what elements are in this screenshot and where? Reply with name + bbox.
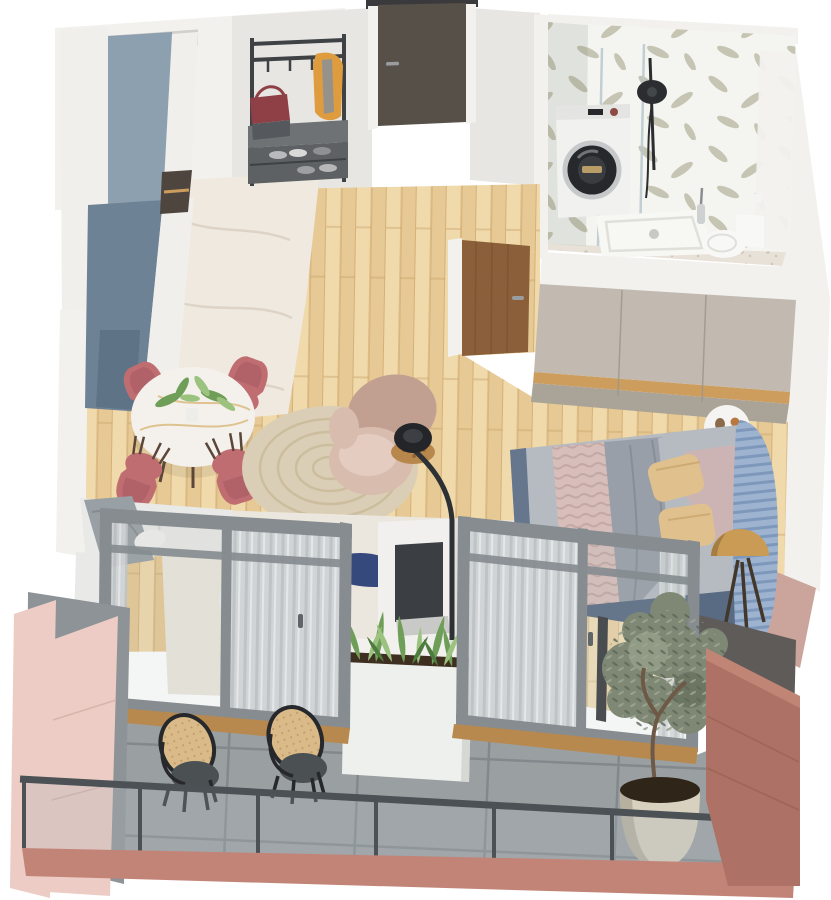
left-window-unit: [94, 508, 352, 744]
washing-machine: [556, 104, 630, 218]
wardrobe: [531, 252, 800, 424]
hanging-jacket: [313, 53, 343, 121]
bedroom-door-jamb-left: [448, 238, 462, 357]
niche-wood-shelf: [164, 190, 189, 192]
planter-body: [342, 662, 472, 782]
shower-drain: [649, 229, 659, 239]
left-door-handle: [298, 614, 303, 628]
door-handle: [386, 62, 399, 66]
bathroom: [548, 22, 796, 258]
door-jamb-left: [368, 6, 378, 130]
floorplan-svg: [0, 0, 831, 900]
bedroom-door: [448, 238, 530, 357]
tv: [395, 542, 443, 622]
floorplan-render: [0, 0, 831, 900]
wall-right-of-door: [470, 8, 540, 186]
washer-display: [588, 109, 603, 115]
toilet-paper-roll: [750, 194, 762, 203]
door-jamb-right: [466, 4, 476, 124]
right-door-handle: [588, 632, 593, 646]
bedroom-door-handle: [512, 296, 524, 300]
washer-knob: [610, 108, 618, 116]
